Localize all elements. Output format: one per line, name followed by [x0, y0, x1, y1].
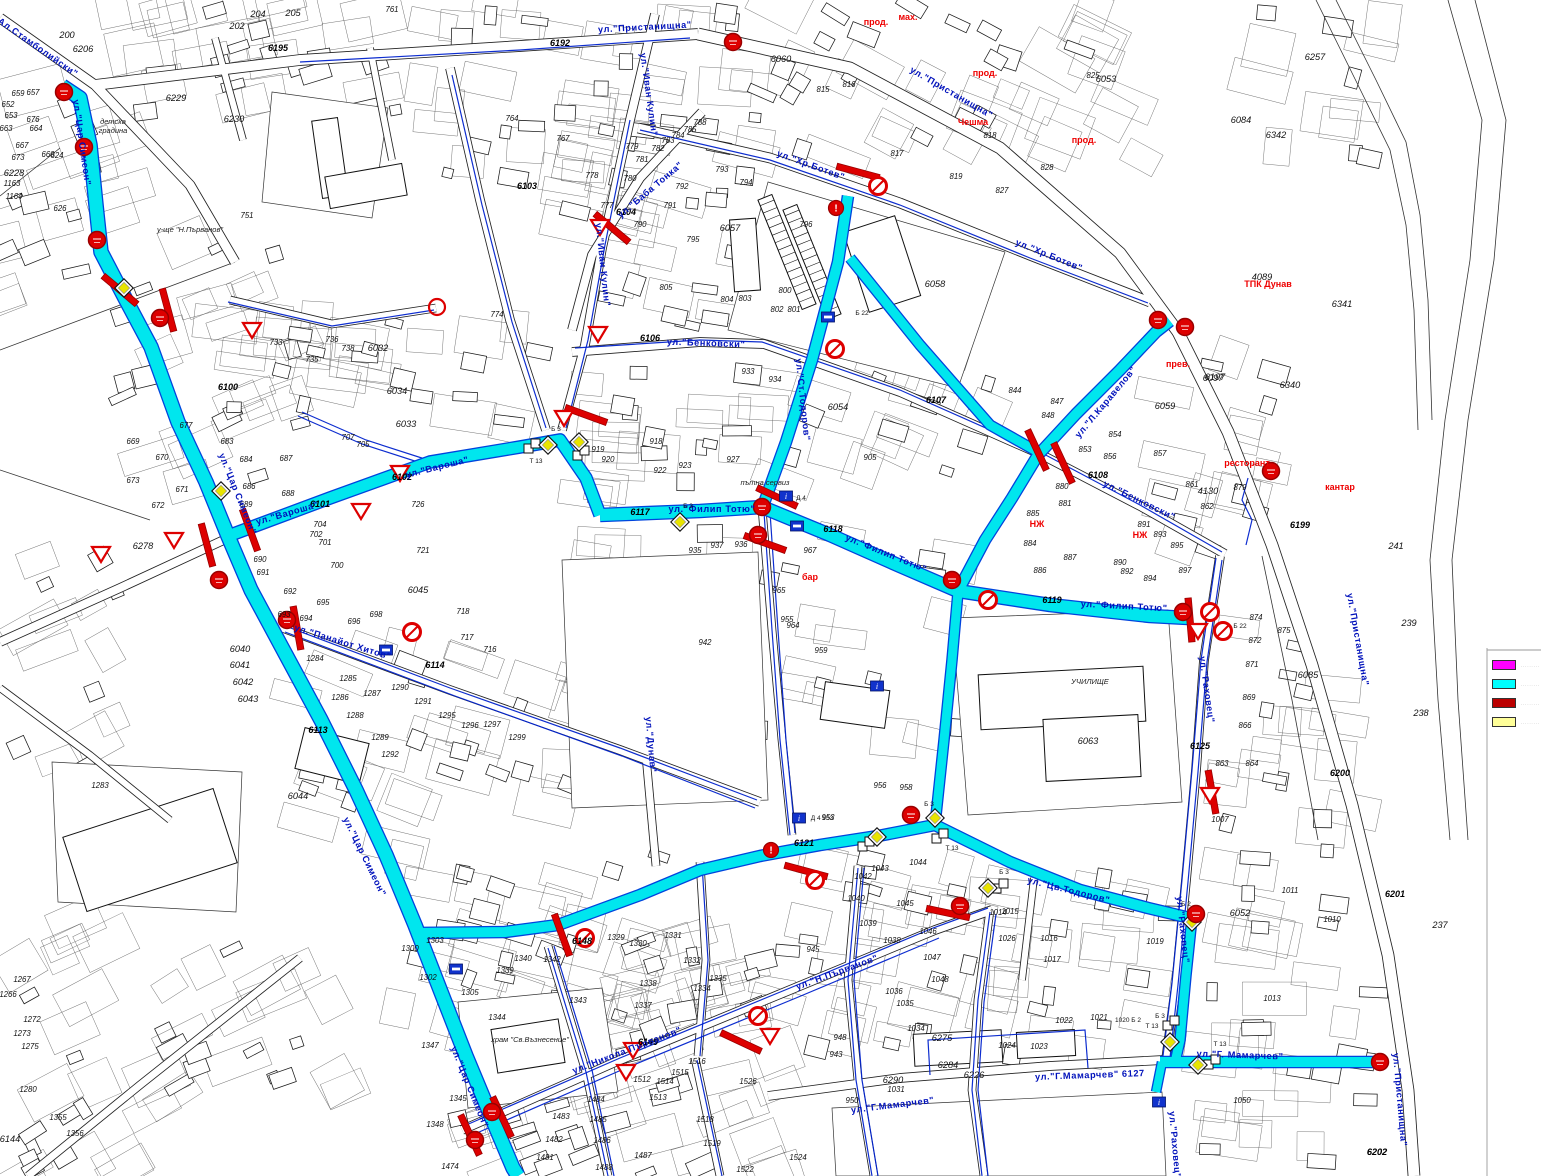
red-label: прод.	[973, 68, 998, 78]
building-outline	[977, 20, 1002, 41]
parcel-label: 1284	[306, 654, 324, 663]
parcel-label: 702	[309, 530, 323, 539]
parcel-label: 1331	[664, 931, 681, 940]
parcel-outline	[407, 6, 458, 40]
parcel-label: 717	[460, 633, 474, 642]
building-outline	[484, 6, 497, 25]
building-outline	[269, 1067, 297, 1089]
zone-label: 6199	[1290, 520, 1310, 530]
building-outline	[1251, 921, 1269, 934]
parcel-label: 935	[688, 546, 702, 555]
parcel-outline	[443, 641, 487, 671]
parcel-outline	[719, 1082, 770, 1127]
parcel-label: 780	[623, 174, 637, 183]
parcel-label: 1007	[1211, 815, 1229, 824]
zone-label: 6195	[268, 43, 289, 53]
parcel-label: 923	[678, 461, 692, 470]
building-outline	[661, 306, 688, 327]
parcel-label: 1292	[381, 750, 399, 759]
parcel-label: 919	[591, 445, 605, 454]
network-node-icon	[1175, 604, 1192, 621]
parcel-outline	[459, 61, 517, 101]
parcel-label: 1515	[671, 1068, 689, 1077]
parcel-label: 692	[283, 587, 297, 596]
parcel-label: 1291	[414, 697, 431, 706]
parcel-label: 805	[659, 283, 673, 292]
parcel-label: 6340	[1280, 380, 1301, 390]
parcel-label: 1045	[896, 899, 914, 908]
legend-chip-route-cyan	[1492, 679, 1516, 689]
parcel-label: 1021	[1090, 1013, 1107, 1022]
parcel-outline	[1119, 138, 1163, 177]
red-label: прев.	[1166, 359, 1190, 369]
parcel-outline	[1242, 913, 1303, 956]
tiny-label: Б 2	[1181, 901, 1191, 908]
parcel-label: 884	[1023, 539, 1037, 548]
parcel-label: 726	[411, 500, 425, 509]
parcel-label: 705	[356, 440, 370, 449]
parcel-label: 863	[1215, 759, 1229, 768]
building-outline	[667, 1000, 697, 1024]
parcel-label: 716	[483, 645, 497, 654]
parcel-label: 880	[1055, 482, 1069, 491]
building-outline	[559, 201, 590, 221]
sign-glyph	[452, 968, 460, 971]
parcel-outline	[1363, 1, 1402, 48]
building-outline	[1259, 396, 1277, 416]
parcel-outline	[157, 216, 215, 270]
building-outline	[1126, 968, 1150, 987]
poi-label: у-ще "Н.Първанов"	[156, 225, 223, 234]
street-label: ул."Вароша"	[255, 499, 320, 526]
parcel-outline	[554, 138, 588, 172]
parcel-label: 6053	[1096, 74, 1117, 84]
parcel-label: 948	[833, 1033, 847, 1042]
parcel-outline	[987, 970, 1019, 1012]
parcel-label: 943	[829, 1050, 843, 1059]
street-label: ул."Бенковски"	[1102, 479, 1177, 522]
parcel-label: 1287	[363, 689, 381, 698]
building-outline	[284, 338, 302, 360]
sign-glyph: i	[798, 814, 800, 823]
parcel-label: 1035	[896, 999, 914, 1008]
building-outline	[84, 681, 105, 702]
parcel-label: 1513	[649, 1093, 667, 1102]
parcel-outline	[214, 351, 276, 378]
parcel-label: 1332	[683, 956, 701, 965]
parcel-outline	[1309, 708, 1369, 738]
parcel-label: 1289	[371, 733, 389, 742]
network-node-icon	[944, 572, 961, 589]
tiny-label: Т 13	[1213, 1041, 1226, 1048]
parcel-label: 676	[26, 115, 40, 124]
parcel-label: 804	[720, 295, 734, 304]
parcel-outline	[0, 283, 27, 317]
parcel-outline	[320, 1068, 371, 1110]
parcel-label: 937	[710, 541, 724, 550]
boundary-line	[1316, 0, 1418, 430]
parcel-label: 6042	[233, 677, 253, 687]
parcel-label: 1522	[736, 1165, 754, 1174]
parcel-label: 934	[768, 375, 782, 384]
parcel-outline	[504, 660, 566, 711]
parcel-outline	[718, 49, 771, 95]
zone-label: 6202	[1367, 1147, 1387, 1157]
parcel-label: 1164	[6, 192, 23, 201]
parcel-label: 942	[698, 638, 712, 647]
sign-glyph	[824, 316, 832, 319]
map-canvas[interactable]: iiii!!2006206202204205623062296246267516…	[0, 0, 1541, 1176]
yield-triangle-icon	[243, 323, 261, 338]
parcel-label: 1474	[441, 1162, 459, 1171]
parcel-label: 6040	[230, 644, 251, 654]
parcel-outline	[698, 67, 753, 107]
parcel-label: 1038	[883, 936, 901, 945]
parcel-label: 1335	[709, 974, 727, 983]
building-outline	[406, 729, 427, 751]
parcel-outline	[1227, 57, 1293, 104]
legend-item-route-red: .........	[1492, 698, 1538, 708]
parcel-outline	[506, 127, 545, 163]
building-outline	[451, 28, 472, 46]
parcel-label: 1046	[919, 927, 937, 936]
zone-label: 6125	[1190, 741, 1211, 751]
parcel-label: 707	[341, 433, 355, 442]
building-outline	[945, 14, 970, 33]
parcel-outline	[1291, 962, 1340, 991]
parcel-label: 694	[299, 614, 313, 623]
parcel-label: 669	[126, 437, 140, 446]
red-label: кантар	[1325, 482, 1355, 492]
parcel-label: 894	[1143, 574, 1157, 583]
tiny-label: Б 22	[855, 310, 869, 317]
parcel-label: 795	[686, 235, 700, 244]
zone-label: 6103	[517, 181, 537, 191]
network-node-icon	[1372, 1054, 1389, 1071]
parcel-label: 6278	[133, 541, 154, 551]
parcel-label: 1347	[421, 1041, 439, 1050]
parcel-label: 920	[601, 455, 615, 464]
parcel-label: 667	[15, 141, 29, 150]
parcel-label: 945	[806, 945, 820, 954]
warning-glyph: !	[769, 846, 772, 857]
building-outline	[410, 389, 433, 404]
yield-triangle-icon	[761, 1029, 779, 1044]
parcel-label: 864	[1245, 759, 1259, 768]
parcel-label: 893	[1153, 530, 1167, 539]
parcel-outline	[807, 427, 862, 474]
parcel-label: 1340	[514, 954, 532, 963]
parcel-label: 684	[239, 455, 253, 464]
parcel-label: 1010	[1323, 915, 1341, 924]
building-outline	[18, 239, 50, 265]
karavelov-highlight	[958, 321, 1170, 591]
legend-chip-route-yellow	[1492, 717, 1516, 727]
parcel-label: 793	[715, 165, 729, 174]
parcel-label: 774	[490, 310, 504, 319]
network-node-icon	[903, 807, 920, 824]
parcel-outline	[310, 1053, 365, 1109]
building-outline	[1307, 1153, 1336, 1169]
parcel-label: 718	[456, 607, 470, 616]
parcel-label: 688	[281, 489, 295, 498]
parcel-label: 1043	[871, 864, 889, 873]
parcel-label: 237	[1431, 920, 1448, 930]
parcel-label: 690	[253, 555, 267, 564]
parcel-outline	[907, 987, 961, 1016]
legend-label: .........	[1521, 663, 1540, 668]
building-outline	[37, 577, 54, 593]
boundary-line	[1430, 0, 1482, 840]
building-outline	[437, 763, 464, 781]
parcel-outline	[182, 288, 218, 320]
parcel-label: 6057	[720, 223, 741, 233]
parcel-label: 673	[126, 476, 140, 485]
building-outline	[883, 1037, 901, 1051]
parcel-label: 892	[1120, 567, 1134, 576]
poi-label: градина	[99, 126, 128, 135]
parcel-label: 6226	[964, 1070, 985, 1080]
parcel-label: 847	[1050, 397, 1064, 406]
street-label: ул."Филип Тотю"	[669, 504, 756, 514]
cadastral-map[interactable]: iiii!!2006206202204205623062296246267516…	[0, 0, 1541, 1176]
parcel-label: 958	[899, 783, 913, 792]
zone-label: 6118	[823, 524, 842, 534]
parcel-label: 626	[53, 204, 67, 213]
street-label: ул."Пристанищна"	[1345, 592, 1371, 686]
parcel-label: 6084	[1231, 115, 1251, 125]
parcel-label: 696	[347, 617, 361, 626]
building-outline	[749, 112, 761, 122]
yield-triangle-icon	[165, 533, 183, 548]
building-outline	[62, 264, 91, 279]
parcel-label: 895	[1170, 541, 1184, 550]
parcel-label: 202	[228, 21, 244, 31]
parcel-label: 6043	[238, 694, 259, 704]
parcel-label: 1273	[13, 1029, 31, 1038]
parcel-label: 1290	[391, 683, 409, 692]
parcel-label: 6290	[883, 1075, 904, 1085]
tiny-label: Б 3	[1155, 1013, 1165, 1020]
parcel-outline	[385, 779, 442, 821]
parcel-label: 6229	[166, 93, 186, 103]
building-outline	[630, 366, 647, 379]
sign-glyph: i	[785, 492, 787, 501]
parcel-label: 779	[625, 142, 639, 151]
parcel-label: 238	[1412, 708, 1429, 718]
legend-label: .........	[1521, 682, 1540, 687]
parcel-outline	[1239, 1120, 1272, 1149]
building-outline	[290, 1036, 304, 1050]
zone-label: 6100	[218, 382, 238, 392]
building-outline	[486, 764, 510, 782]
parcel-label: 1299	[508, 733, 526, 742]
parcel-label: 672	[151, 501, 165, 510]
parcel-label: 857	[1153, 449, 1167, 458]
parcel-label: 1516	[688, 1057, 706, 1066]
building-outline	[697, 525, 723, 543]
parcel-label: 965	[772, 586, 786, 595]
parcel-outline	[40, 1002, 100, 1055]
parcel-label: 6052	[1230, 908, 1250, 918]
zone-label: 6114	[425, 660, 444, 670]
parcel-label: 764	[505, 114, 519, 123]
network-node-icon	[754, 499, 771, 516]
parcel-label: 853	[1078, 445, 1092, 454]
parcel-label: 967	[803, 546, 817, 555]
legend: ....................................	[1492, 660, 1538, 736]
tiny-label: Д 4 953	[811, 815, 834, 822]
parcel-label: 721	[416, 546, 429, 555]
parcel-label: 879	[1233, 483, 1247, 492]
building-outline	[203, 1, 227, 19]
zone-label: 6200	[1330, 768, 1350, 778]
parcel-outline	[1241, 23, 1296, 76]
network-node-icon	[1177, 319, 1194, 336]
parcel-label: 802	[770, 305, 784, 314]
parcel-label: 761	[385, 5, 398, 14]
parcel-outline	[939, 849, 975, 890]
parcel-outline	[322, 17, 374, 51]
parcel-label: 1047	[923, 953, 941, 962]
parcel-label: 1488	[595, 1163, 613, 1172]
parcel-label: 1485	[589, 1115, 607, 1124]
building-outline	[1064, 40, 1095, 59]
building-outline	[568, 1126, 588, 1149]
parcel-label: 1275	[21, 1042, 39, 1051]
parcel-label: 663	[0, 124, 13, 133]
zone-label: 6113	[308, 725, 327, 735]
parcel-outline	[1243, 1091, 1298, 1117]
parcel-label: 891	[1137, 520, 1150, 529]
parcel-label: 848	[1041, 411, 1055, 420]
parcel-label: 6034	[387, 386, 407, 396]
red-label: ресторант	[1224, 458, 1270, 468]
parcel-label: 905	[863, 453, 877, 462]
sign-glyph: i	[876, 682, 878, 691]
parcel-label: 1481	[536, 1153, 553, 1162]
building-outline	[525, 342, 553, 360]
parcel-label: 686	[242, 482, 256, 491]
building-outline	[1319, 894, 1349, 914]
building-outline	[1242, 1022, 1271, 1036]
parcel-label: 881	[1058, 499, 1071, 508]
parcel-label: 6059	[1155, 401, 1175, 411]
parcel-label: 6041	[230, 660, 250, 670]
parcel-outline	[15, 541, 59, 579]
road-closed-bar-icon	[720, 1030, 763, 1054]
parcel-label: 956	[873, 781, 887, 790]
building-outline	[1354, 1094, 1378, 1106]
tiny-label: Б 3	[551, 426, 561, 433]
link-vertical-highlight	[935, 592, 958, 825]
parcel-outline	[751, 1065, 803, 1107]
parcel-label: 1040	[847, 894, 865, 903]
yield-triangle-icon	[555, 411, 573, 426]
red-label: прод.	[864, 17, 889, 27]
building-outline	[545, 1098, 570, 1113]
parcel-outline	[454, 316, 508, 360]
parcel-label: 664	[29, 124, 43, 133]
parcel-outline	[93, 702, 130, 737]
red-label: НЖ	[1030, 519, 1045, 529]
parcel-outline	[795, 604, 835, 642]
building-outline	[554, 105, 576, 122]
parcel-outline	[687, 394, 751, 426]
building-outline	[66, 1050, 83, 1064]
parcel-outline	[379, 988, 415, 1029]
hydrant-square-icon	[531, 439, 540, 448]
zone-label: 6107	[926, 395, 947, 405]
network-node-icon	[211, 572, 228, 589]
parcel-label: 1044	[909, 858, 927, 867]
building-outline	[635, 1166, 656, 1176]
parcel-label: 874	[1249, 613, 1263, 622]
building-outline	[643, 955, 663, 974]
parcel-label: 6044	[288, 791, 308, 801]
building-outline	[227, 402, 242, 413]
building-outline	[1200, 1144, 1221, 1155]
parcel-outline	[202, 1037, 272, 1087]
parcel-label: 959	[814, 646, 828, 655]
tiny-label: Т 13	[945, 845, 958, 852]
parcel-label: 1163	[4, 179, 21, 188]
parcel-label: 1334	[693, 984, 711, 993]
building-outline	[594, 81, 608, 96]
red-label: мах.	[898, 12, 917, 22]
building-outline	[623, 272, 647, 297]
parcel-outline	[305, 975, 353, 1025]
parcel-label: 1305	[461, 988, 479, 997]
building-outline	[1207, 983, 1218, 1001]
parcel-label: 887	[1063, 553, 1077, 562]
parcel-label: 6144	[0, 1134, 20, 1144]
parcel-outline	[277, 802, 339, 842]
building-outline	[619, 54, 632, 70]
parcel-label: 660	[41, 150, 55, 159]
parcel-label: 695	[316, 598, 330, 607]
parcel-label: 1342	[543, 955, 561, 964]
parcel-label: 1022	[1055, 1016, 1073, 1025]
parcel-label: 1300	[401, 944, 419, 953]
building-outline	[1240, 851, 1271, 866]
parcel-outline	[576, 526, 625, 558]
parcel-label: 918	[649, 437, 663, 446]
parcel-label: 1296	[461, 721, 479, 730]
street-label: ул."Раховец"	[1167, 1111, 1183, 1176]
parcel-label: 1484	[587, 1095, 605, 1104]
parcel-label: 673	[11, 153, 25, 162]
building-outline	[1356, 148, 1382, 169]
zone-label: 6108	[1088, 470, 1108, 480]
tiny-label: 1020 Б 2	[1115, 1017, 1141, 1024]
parcel-label: 890	[1113, 558, 1127, 567]
parcel-label: 781	[635, 155, 648, 164]
parcel-outline	[634, 239, 677, 272]
network-node-icon	[1188, 906, 1205, 923]
network-node-icon	[1150, 312, 1167, 329]
parcel-label: 1344	[488, 1013, 506, 1022]
building-outline	[499, 125, 511, 139]
building-outline	[20, 191, 49, 215]
cv-todorov-highlight	[935, 825, 1190, 918]
parcel-outline	[738, 393, 789, 421]
parcel-label: 794	[739, 178, 753, 187]
parcel-outline	[206, 311, 250, 342]
parcel-label: 6033	[396, 419, 417, 429]
parcel-label: 735	[305, 355, 319, 364]
parcel-label: 1036	[885, 987, 903, 996]
